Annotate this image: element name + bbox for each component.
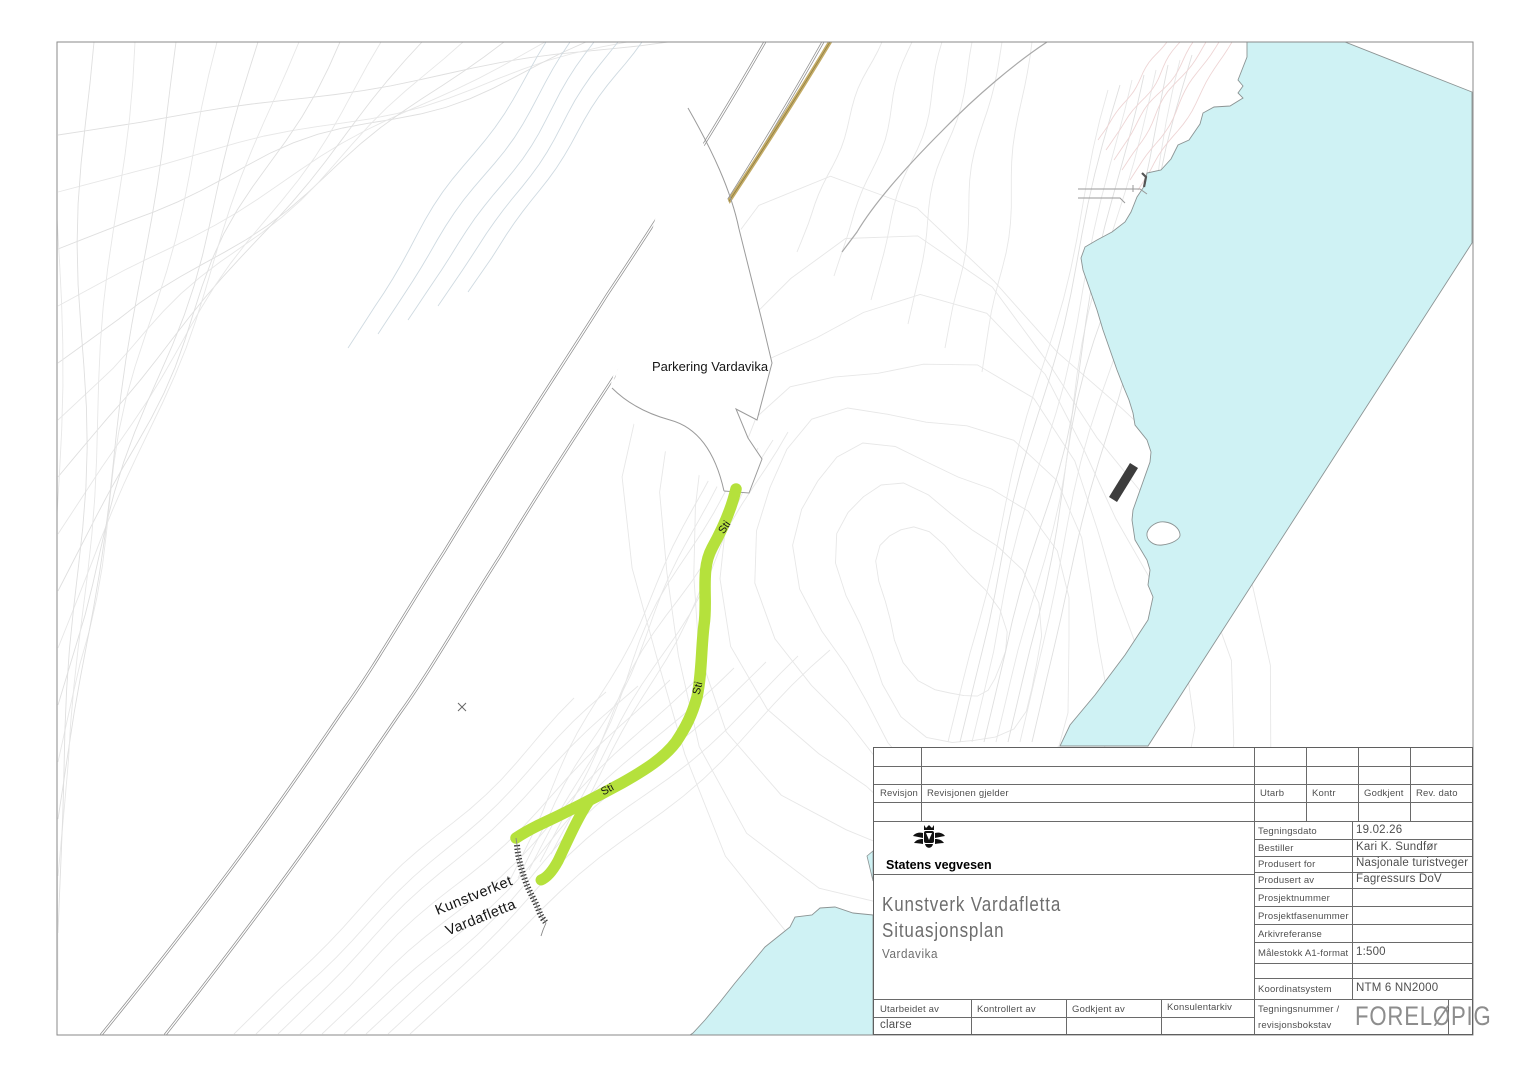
contour-line xyxy=(468,42,642,292)
contour-line xyxy=(58,42,340,591)
contour-line xyxy=(58,42,258,705)
sig-label-utarbeidet: Utarbeidet av xyxy=(880,1004,939,1015)
contour-line xyxy=(984,75,1144,742)
title-block: Revisjon Revisjonen gjelder Utarb Kontr … xyxy=(873,747,1473,1035)
field-value-produsert-av: Fagressurs DoV xyxy=(1356,873,1442,885)
contour-line xyxy=(58,42,627,192)
field-value-produsert-for: Nasjonale turistveger xyxy=(1356,857,1468,869)
revision-col-revisjon: Revisjon xyxy=(880,788,918,799)
field-label-tegningsnummer-2: revisjonsbokstav xyxy=(1258,1020,1331,1031)
contour-line xyxy=(871,42,942,300)
field-label-produsert-av: Produsert av xyxy=(1258,875,1314,886)
parking-label: Parkering Vardavika xyxy=(652,359,769,374)
sig-label-kontrollert: Kontrollert av xyxy=(977,1004,1036,1015)
field-label-prosjektnummer: Prosjektnummer xyxy=(1258,893,1330,904)
field-label-malestokk: Målestokk A1-format xyxy=(1258,948,1348,959)
field-label-tegningsdato: Tegningsdato xyxy=(1258,826,1317,837)
field-value-koordinatsystem: NTM 6 NN2000 xyxy=(1356,982,1438,994)
contour-line xyxy=(58,42,668,135)
statens-vegvesen-logo-icon xyxy=(912,824,946,856)
contour-line xyxy=(388,656,798,1034)
contour-line xyxy=(876,527,1008,696)
revision-col-gjelder: Revisjonen gjelder xyxy=(927,788,1009,799)
sig-label-godkjent: Godkjent av xyxy=(1072,1004,1125,1015)
revision-col-kontr: Kontr xyxy=(1312,788,1336,799)
contour-line xyxy=(58,42,176,819)
drawing-type: Situasjonsplan xyxy=(882,920,1004,943)
sig-label-konsulentarkiv: Konsulentarkiv xyxy=(1167,1002,1232,1013)
contour-line xyxy=(793,443,1069,796)
contour-line xyxy=(58,42,463,420)
location-label: Vardavika xyxy=(882,946,938,961)
contour-line xyxy=(836,483,1042,743)
contour-line xyxy=(58,42,422,477)
x-marker xyxy=(458,703,466,711)
preliminary-stamp: FORELØPIG xyxy=(1355,1001,1492,1032)
field-label-arkivreferanse: Arkivreferanse xyxy=(1258,929,1322,940)
contour-line xyxy=(908,42,972,324)
contour-line xyxy=(58,42,381,534)
field-label-koordinatsystem: Koordinatsystem xyxy=(1258,984,1332,995)
contour-line xyxy=(408,42,594,320)
contour-line xyxy=(834,42,912,276)
org-name: Statens vegvesen xyxy=(886,858,992,872)
project-title: Kunstverk Vardafletta xyxy=(882,894,1061,917)
revision-col-revdato: Rev. dato xyxy=(1416,788,1458,799)
field-value-malestokk: 1:500 xyxy=(1356,946,1386,958)
contour-line xyxy=(562,432,788,846)
field-label-produsert-for: Produsert for xyxy=(1258,859,1316,870)
field-label-prosjektfasenummer: Prosjektfasenummer xyxy=(1258,911,1349,922)
contour-line xyxy=(58,42,299,648)
contour-line xyxy=(438,42,618,306)
drawing-page: { "map": { "parkering_label": "Parkering… xyxy=(0,0,1527,1080)
contour-line xyxy=(58,42,504,363)
contour-line xyxy=(58,42,545,306)
contour-line xyxy=(948,90,1108,742)
field-value-tegningsdato: 19.02.26 xyxy=(1356,824,1402,836)
field-label-bestiller: Bestiller xyxy=(1258,843,1294,854)
field-label-tegningsnummer-1: Tegningsnummer / xyxy=(1258,1004,1339,1015)
contour-line xyxy=(58,42,217,762)
contour-line xyxy=(972,80,1132,742)
sig-value-utarbeidet: clarse xyxy=(880,1019,912,1031)
contour-line xyxy=(58,42,135,876)
field-value-bestiller: Kari K. Sundfør xyxy=(1356,841,1438,853)
boundary-line xyxy=(842,42,1047,252)
contour-line xyxy=(982,42,1032,372)
water-fjord xyxy=(1060,40,1472,746)
revision-col-utarb: Utarb xyxy=(1260,788,1284,799)
trail-path xyxy=(516,489,736,838)
contour-line xyxy=(551,440,773,854)
revision-col-godkjent: Godkjent xyxy=(1364,788,1404,799)
